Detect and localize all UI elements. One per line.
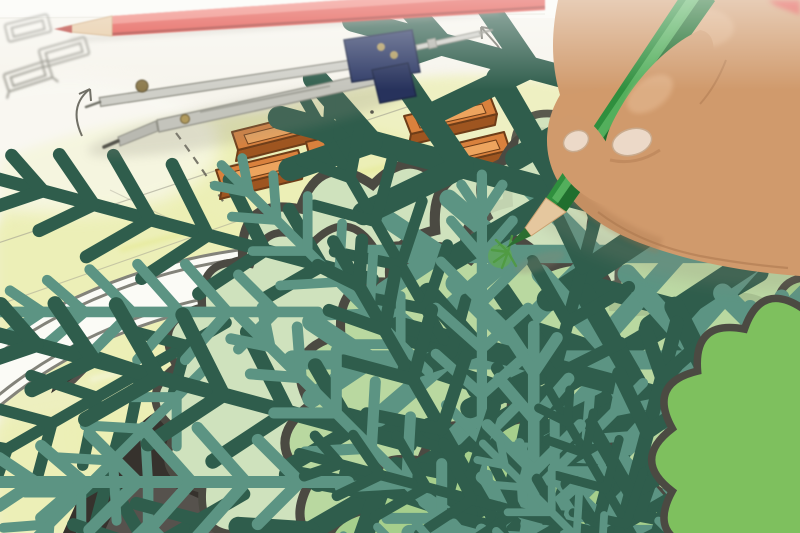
focus-falloff <box>0 0 800 90</box>
landscape-plan-photo <box>0 0 800 533</box>
